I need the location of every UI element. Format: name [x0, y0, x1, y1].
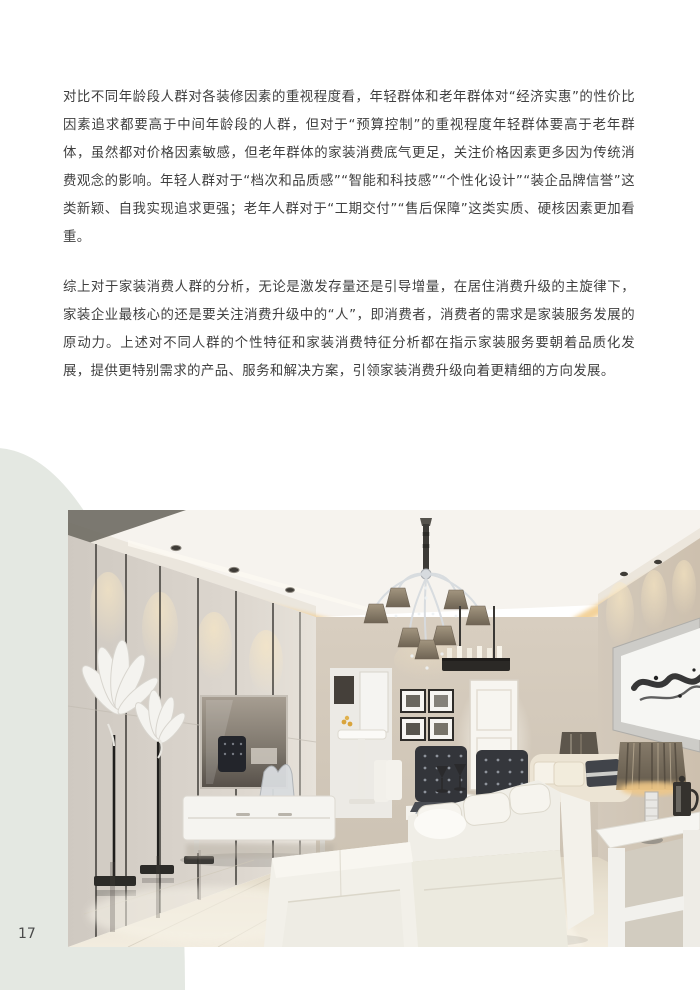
body-text: 对比不同年龄段人群对各装修因素的重视程度看，年轻群体和老年群体对“经济实惠”的性… — [63, 84, 635, 408]
living-room-illustration — [68, 510, 700, 947]
kitchen-opening — [330, 668, 392, 818]
paragraph-summary: 综上对于家装消费人群的分析，无论是激发存量还是引导增量，在居住消费升级的主旋律下… — [63, 274, 635, 386]
living-room-photo — [68, 510, 700, 947]
paragraph-age-groups: 对比不同年龄段人群对各装修因素的重视程度看，年轻群体和老年群体对“经济实惠”的性… — [63, 84, 635, 252]
document-page: 对比不同年龄段人群对各装修因素的重视程度看，年轻群体和老年群体对“经济实惠”的性… — [0, 0, 700, 990]
side-table — [596, 812, 700, 947]
page-number: 17 — [18, 926, 36, 942]
